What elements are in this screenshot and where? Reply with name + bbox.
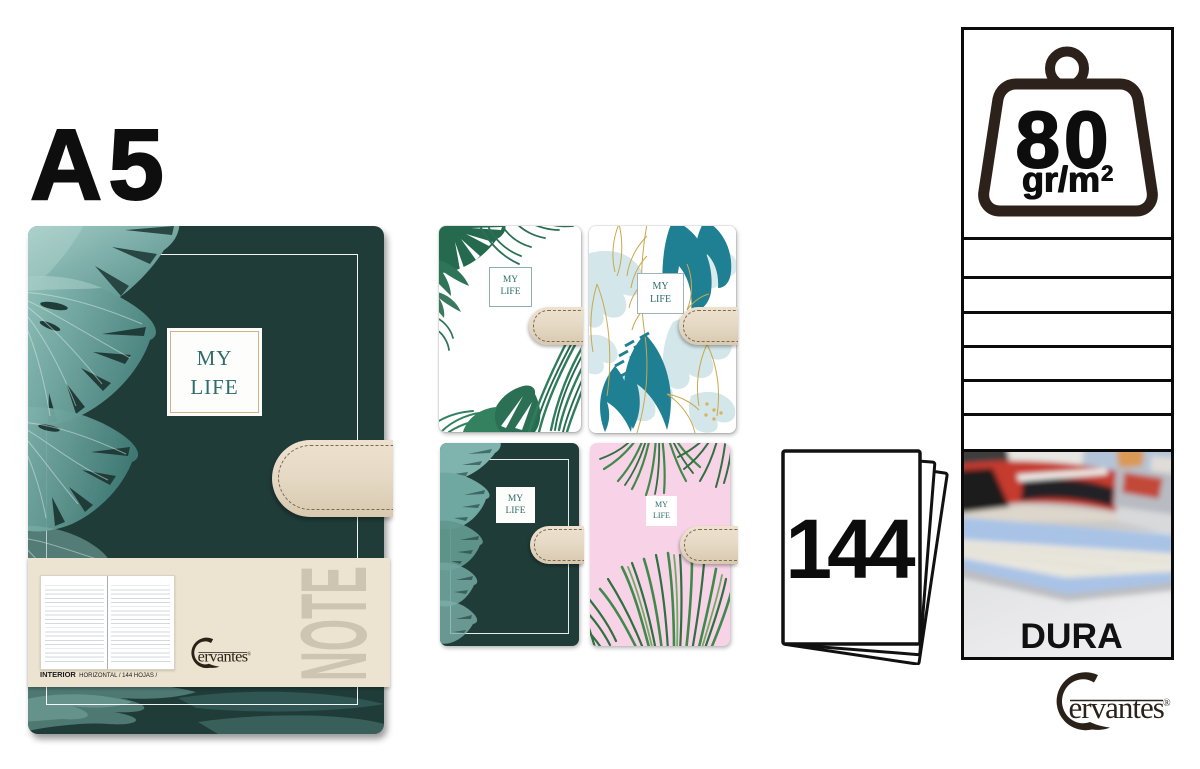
svg-text:2: 2 — [1101, 161, 1113, 186]
svg-text:DURA: DURA — [1020, 616, 1123, 656]
svg-text:NOTE: NOTE — [282, 566, 387, 681]
svg-text:gr/m: gr/m — [1022, 158, 1100, 199]
svg-text:144: 144 — [785, 502, 915, 596]
